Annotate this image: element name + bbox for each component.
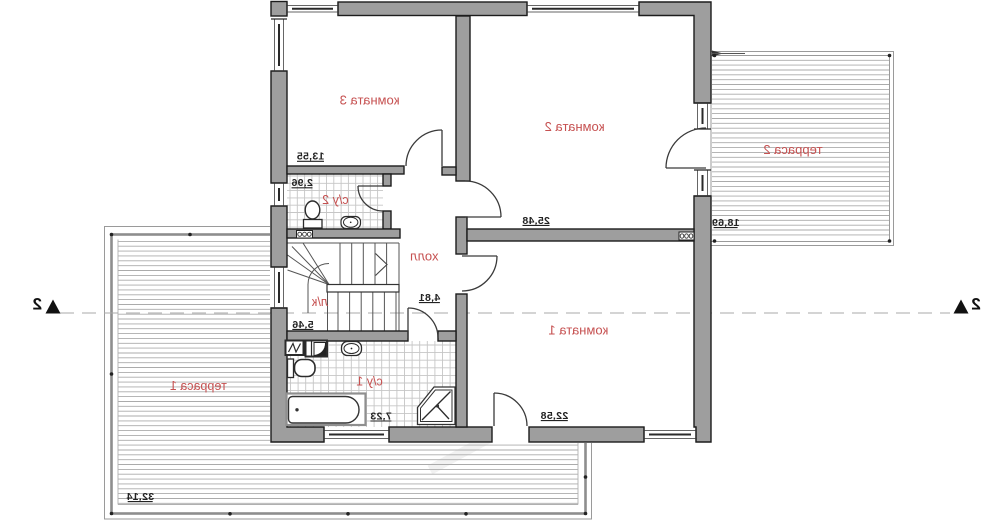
svg-text:холл: холл — [410, 249, 438, 264]
svg-text:с/у 1: с/у 1 — [356, 375, 382, 389]
svg-text:с/у 2: с/у 2 — [322, 193, 348, 207]
svg-text:л/к: л/к — [311, 295, 328, 309]
svg-text:комната 1: комната 1 — [548, 322, 608, 337]
svg-text:терраса 1: терраса 1 — [170, 379, 227, 393]
svg-text:комната 3: комната 3 — [340, 93, 400, 108]
svg-text:2: 2 — [971, 295, 980, 314]
svg-text:терраса 2: терраса 2 — [763, 142, 822, 157]
svg-text:комната 2: комната 2 — [545, 119, 605, 134]
svg-text:2: 2 — [33, 295, 42, 314]
